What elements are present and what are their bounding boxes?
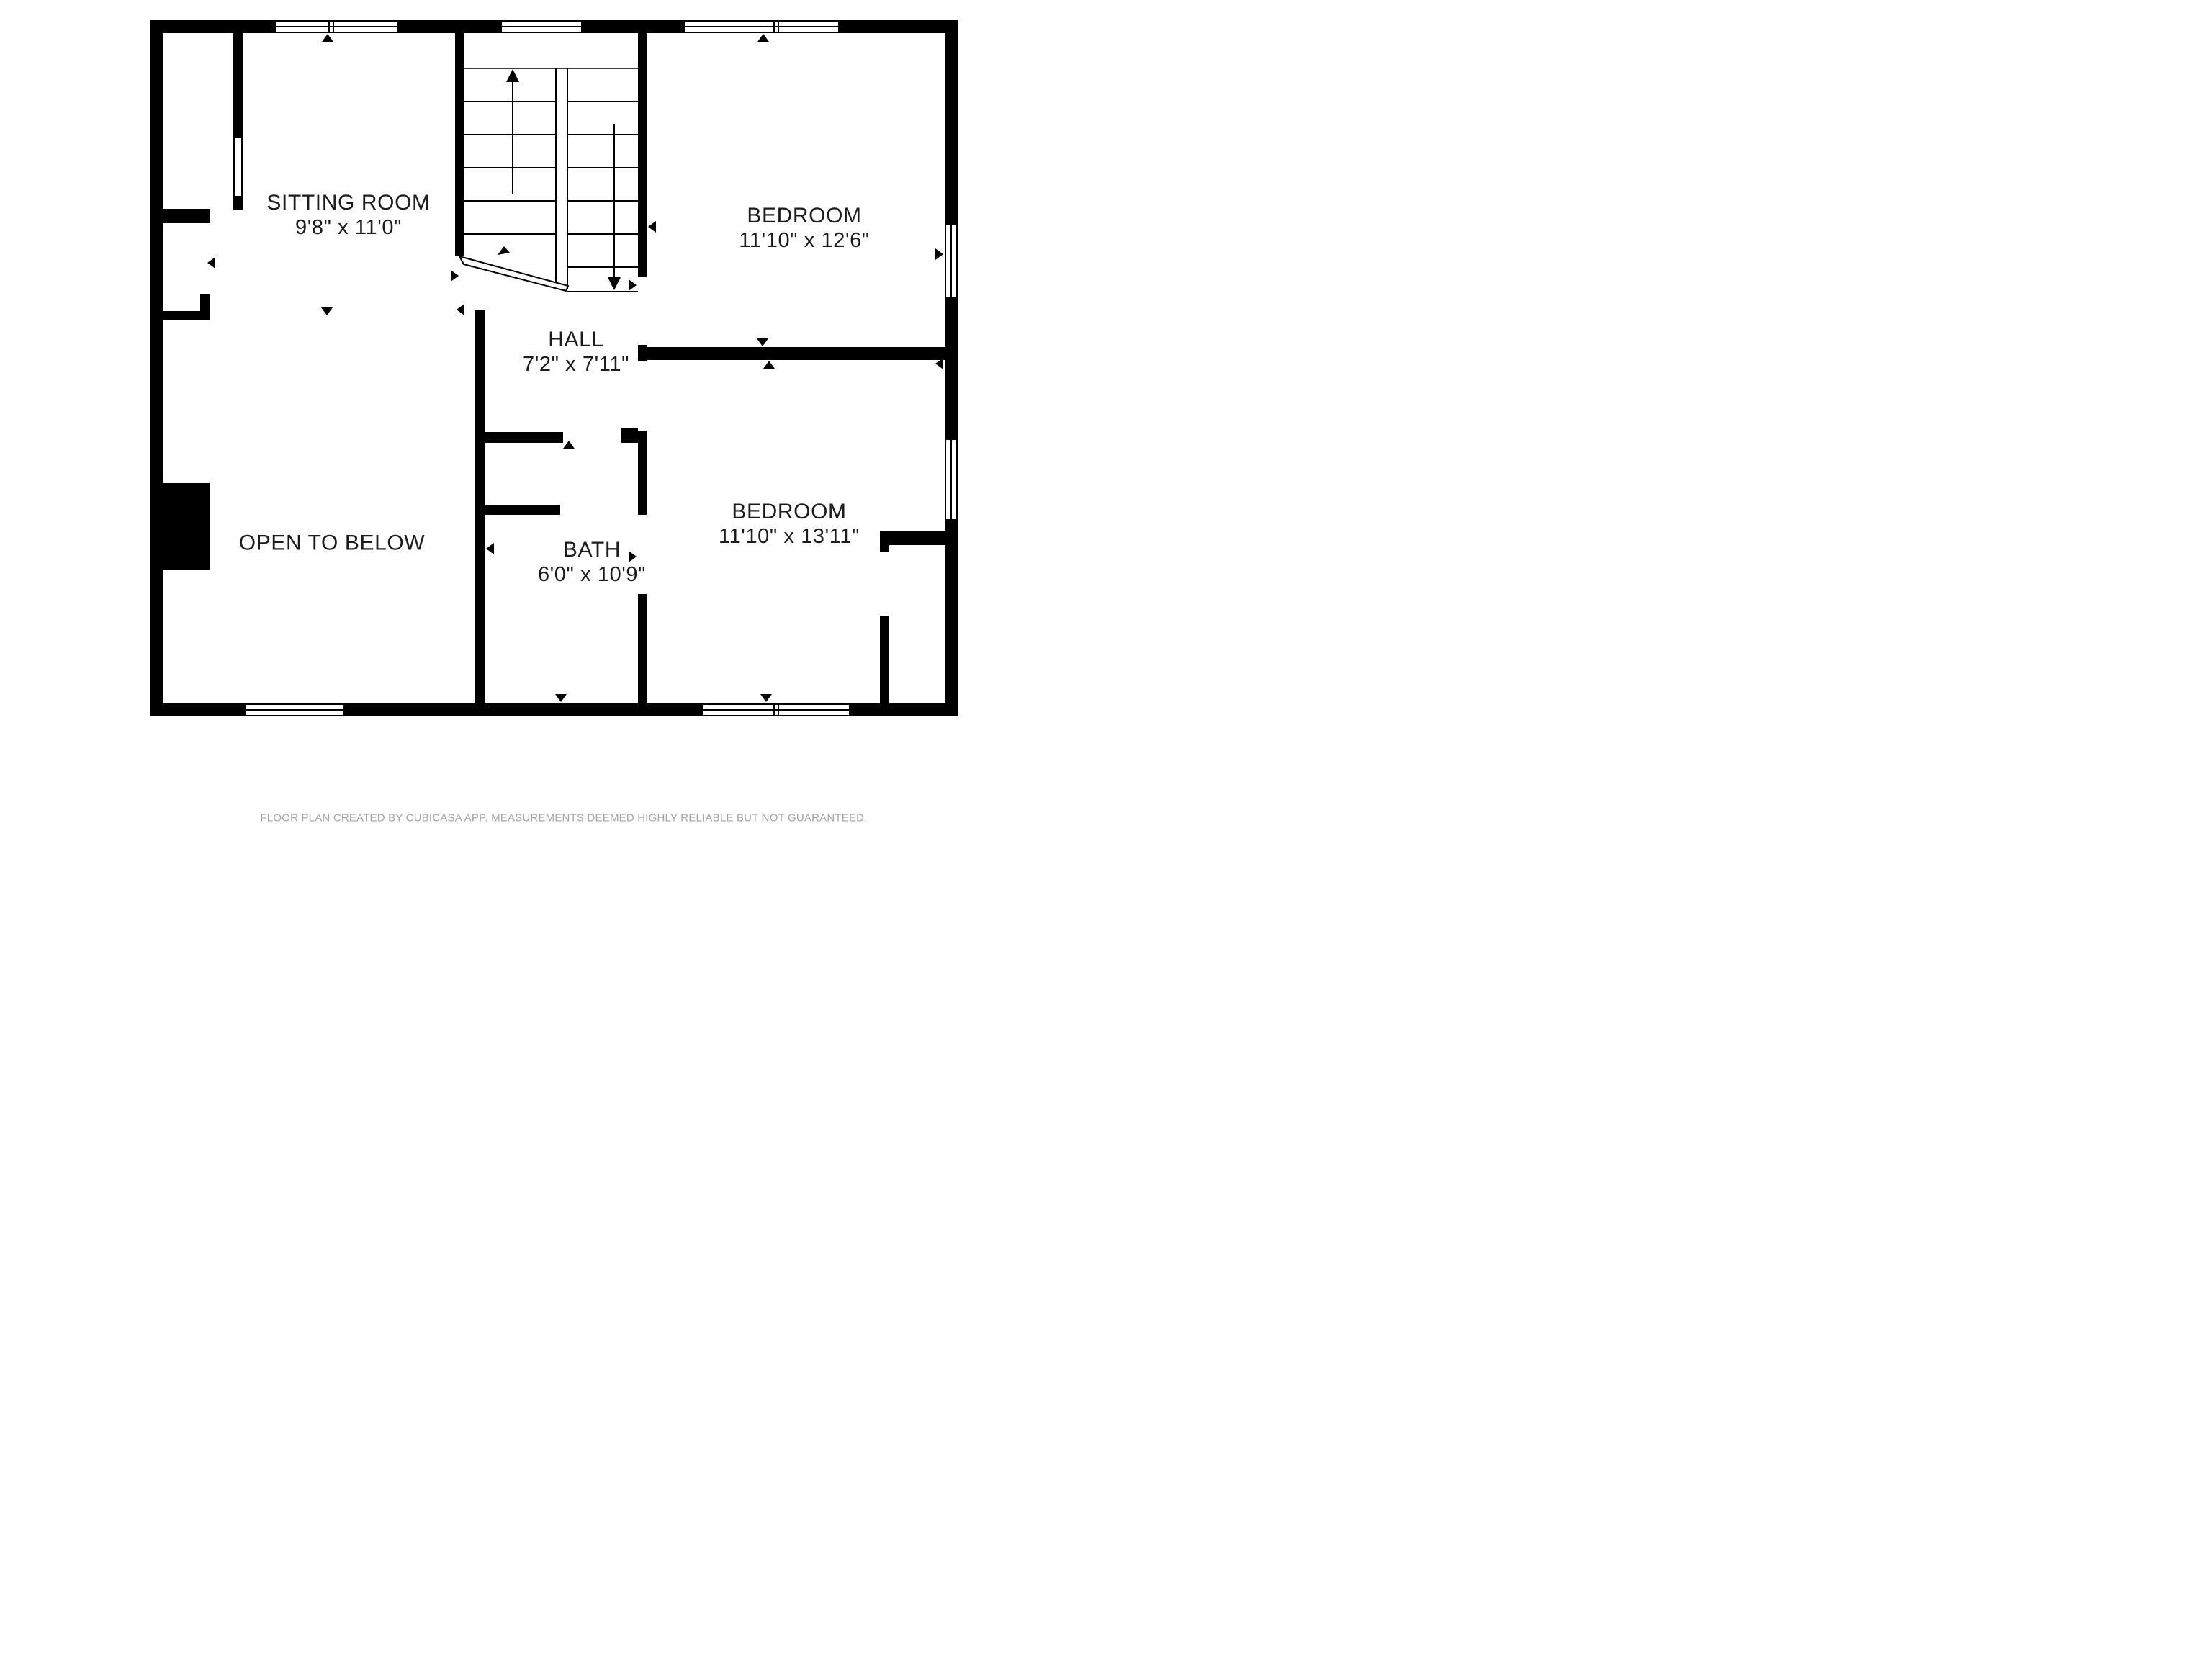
stair-treads-left — [464, 102, 556, 234]
room-dimensions: 11'10" x 12'6" — [739, 228, 869, 253]
window-marker-up-icon — [757, 34, 769, 42]
wall-closet-right-upper — [233, 33, 243, 138]
door-arrow-up-icon — [763, 361, 775, 369]
room-name: BEDROOM — [739, 203, 869, 228]
door-arrow-left-icon — [486, 543, 494, 554]
window-marker-up-icon — [322, 34, 333, 42]
room-label-hall: HALL 7'2" x 7'11" — [523, 327, 629, 377]
room-label-bedroom-bottom: BEDROOM 11'10" x 13'11" — [719, 499, 860, 549]
floor-plan-page: SITTING ROOM 9'8" x 11'0" BEDROOM 11'10"… — [0, 0, 1106, 829]
window-right-lower — [945, 439, 956, 520]
stair-center-divider — [556, 68, 567, 289]
wall-closet2-left-a — [880, 545, 889, 552]
room-name: HALL — [523, 327, 629, 352]
room-name: OPEN TO BELOW — [239, 531, 425, 556]
window-top-middle — [501, 21, 582, 32]
wall-bedrooms-west-b — [638, 345, 647, 361]
door-arrow-left-icon — [648, 221, 656, 233]
wall-bedrooms-west-d — [638, 594, 647, 703]
room-name: BATH — [538, 537, 646, 562]
wall-bath-top — [485, 432, 563, 443]
door-arrow-left-icon — [207, 257, 215, 269]
wall-bath-west — [475, 310, 485, 703]
room-name: SITTING ROOM — [266, 190, 430, 215]
room-dimensions: 6'0" x 10'9" — [538, 562, 646, 588]
wall-closet2-top — [880, 531, 945, 545]
window-top-right — [684, 21, 839, 32]
stair-treads-right — [567, 102, 638, 292]
wall-bath-stub — [485, 505, 560, 515]
wall-bedrooms-west-c — [638, 431, 647, 515]
wall-outer-right — [945, 20, 958, 716]
window-right-upper — [945, 224, 956, 298]
wall-stairwell-left — [455, 33, 464, 256]
stairs-down-arrow-icon — [608, 124, 621, 290]
room-name: BEDROOM — [719, 499, 860, 524]
wall-bedroom-divider — [647, 347, 945, 360]
room-label-bath: BATH 6'0" x 10'9" — [538, 537, 646, 588]
wall-small-room-bottom — [163, 311, 210, 320]
room-dimensions: 11'10" x 13'11" — [719, 524, 860, 549]
window-marker-down-icon — [760, 694, 772, 702]
stair-railing-diagonal — [459, 256, 568, 291]
wall-outer-left — [150, 20, 163, 716]
wall-closet2-left-b — [880, 616, 889, 703]
stair-railing-arrow-icon — [498, 246, 510, 255]
stairs-up-arrow-icon — [506, 69, 519, 194]
window-bottom-left — [246, 704, 344, 716]
window-bottom-right — [703, 704, 850, 716]
wall-chimney — [163, 483, 210, 570]
window-closet-interior — [234, 138, 242, 197]
room-label-sitting-room: SITTING ROOM 9'8" x 11'0" — [266, 190, 430, 240]
wall-bath-top-corner — [621, 428, 638, 443]
wall-closet-right-lower — [233, 197, 243, 210]
railing-marker-down-icon — [321, 307, 333, 315]
floor-plan-drawing — [0, 0, 1106, 829]
door-arrow-right-icon — [451, 270, 459, 282]
wall-bedrooms-west-a — [638, 33, 647, 276]
wall-closet-bottom — [163, 209, 210, 223]
window-marker-right-icon — [935, 248, 943, 260]
door-arrow-up-icon — [563, 441, 575, 449]
room-label-bedroom-top: BEDROOM 11'10" x 12'6" — [739, 203, 869, 253]
room-dimensions: 9'8" x 11'0" — [266, 215, 430, 240]
staircase — [459, 68, 638, 292]
footer-disclaimer: FLOOR PLAN CREATED BY CUBICASA APP. MEAS… — [260, 812, 867, 824]
window-marker-down-icon — [555, 694, 567, 702]
door-arrow-down-icon — [757, 338, 768, 346]
door-arrow-right-icon — [629, 279, 637, 291]
room-label-open-to-below: OPEN TO BELOW — [239, 531, 425, 556]
room-dimensions: 7'2" x 7'11" — [523, 352, 629, 377]
door-arrow-left-icon — [457, 304, 464, 315]
window-top-left — [275, 21, 398, 32]
